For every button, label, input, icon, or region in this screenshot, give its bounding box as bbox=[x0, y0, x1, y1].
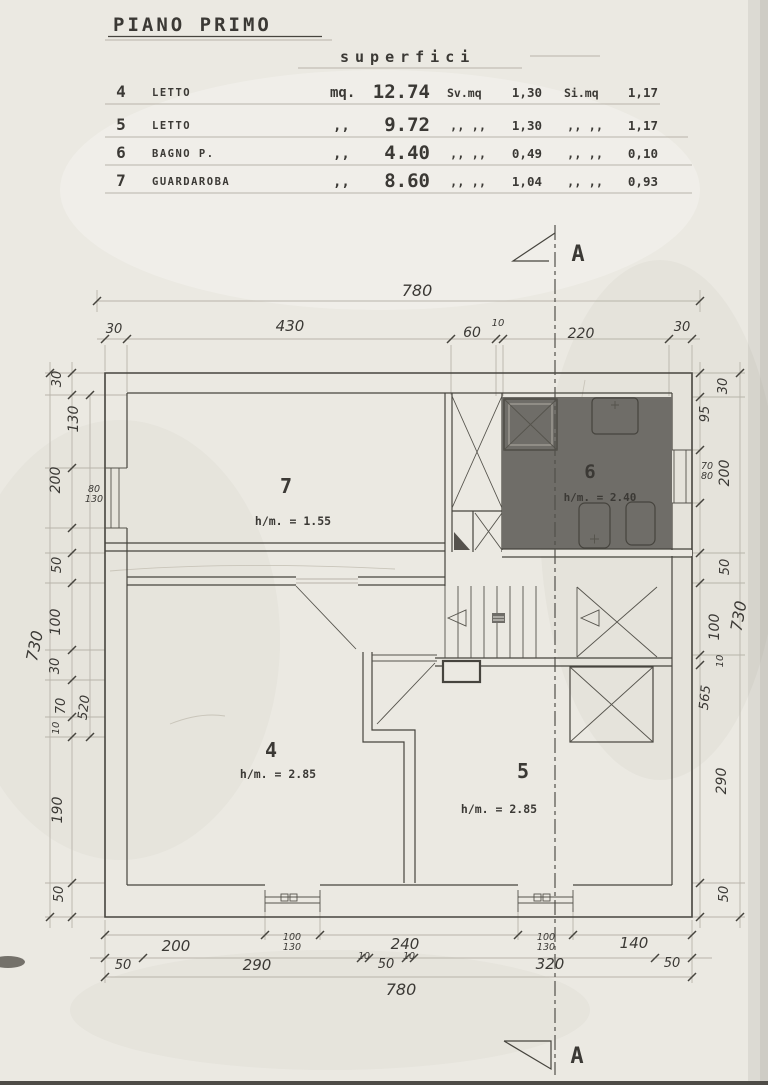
si-ditto: ,, ,, bbox=[567, 119, 603, 133]
dim-label: 50 bbox=[664, 956, 681, 971]
window-dim-sill: 80 bbox=[701, 471, 713, 482]
dim-label: 50 bbox=[52, 886, 67, 903]
dim-label: 320 bbox=[536, 955, 565, 973]
dim-bottom-overall: 780 bbox=[386, 980, 417, 999]
dim-label: 10 bbox=[403, 951, 415, 962]
room7-number: 7 bbox=[280, 474, 292, 498]
dim-label: 30 bbox=[48, 658, 63, 675]
sv-ditto: ,, ,, bbox=[450, 147, 486, 161]
dim-label: 100 bbox=[48, 609, 64, 636]
table-subtitle: superfici bbox=[340, 48, 475, 66]
row-number: 4 bbox=[116, 82, 126, 101]
row-number: 6 bbox=[116, 143, 126, 162]
sv-ditto: ,, ,, bbox=[450, 119, 486, 133]
room-name: LETTO bbox=[152, 87, 191, 99]
room4-number: 4 bbox=[265, 738, 277, 762]
dim-label: 200 bbox=[162, 937, 191, 955]
room-name: BAGNO P. bbox=[152, 148, 215, 160]
unit-ditto: ,, bbox=[333, 174, 350, 190]
si-value: 0,10 bbox=[628, 146, 658, 161]
dim-label: 200 bbox=[48, 467, 64, 494]
dim-label: 50 bbox=[50, 557, 65, 574]
page-title: PIANO PRIMO bbox=[113, 14, 272, 36]
dim-label: 10 bbox=[715, 655, 726, 668]
room7-height: h/m. = 1.55 bbox=[255, 514, 331, 528]
room-name: GUARDAROBA bbox=[152, 176, 230, 188]
dim-label: 60 bbox=[463, 325, 481, 341]
dim-label: 50 bbox=[378, 957, 395, 972]
dim-label: 190 bbox=[50, 797, 66, 824]
si-value: 1,17 bbox=[628, 85, 658, 100]
unit-ditto: ,, bbox=[333, 118, 350, 134]
si-value: 0,93 bbox=[628, 174, 658, 189]
dim-label: 220 bbox=[568, 326, 595, 342]
sv-value: 1,30 bbox=[512, 85, 542, 100]
row-number: 5 bbox=[116, 115, 126, 134]
dim-label: 140 bbox=[620, 934, 649, 952]
area-value: 4.40 bbox=[384, 142, 430, 164]
room5-number: 5 bbox=[517, 759, 529, 783]
room4-height: h/m. = 2.85 bbox=[240, 767, 316, 781]
area-value: 12.74 bbox=[373, 81, 430, 103]
section-label-top: A bbox=[571, 242, 584, 267]
stair-hatch-marker bbox=[492, 613, 505, 623]
window-dim-sill: 130 bbox=[283, 942, 301, 953]
area-value: 8.60 bbox=[384, 170, 430, 192]
si-ditto: ,, ,, bbox=[567, 147, 603, 161]
area-value: 9.72 bbox=[384, 114, 430, 136]
dim-label: 95 bbox=[698, 406, 713, 423]
dim-label: 290 bbox=[714, 768, 730, 795]
dim-label: 10 bbox=[492, 318, 505, 329]
si-value: 1,17 bbox=[628, 118, 658, 133]
dim-label: 30 bbox=[716, 378, 731, 395]
unit-label: mq. bbox=[330, 85, 355, 101]
dim-label: 30 bbox=[674, 320, 691, 335]
sv-value: 1,30 bbox=[512, 118, 542, 133]
dim-label: 70 bbox=[54, 698, 69, 715]
floor-plan-drawing: PIANO PRIMO superfici 4 LETTO mq. 12.74 … bbox=[0, 0, 768, 1085]
room5-height: h/m. = 2.85 bbox=[461, 802, 537, 816]
row-number: 7 bbox=[116, 171, 126, 190]
dim-label: 30 bbox=[50, 371, 65, 388]
sv-ditto: ,, ,, bbox=[450, 175, 486, 189]
si-label: Si.mq bbox=[564, 86, 599, 100]
unit-ditto: ,, bbox=[333, 146, 350, 162]
dim-label: 290 bbox=[243, 956, 272, 974]
dim-label: 50 bbox=[717, 886, 732, 903]
dim-label: 10 bbox=[358, 951, 370, 962]
dim-label: 200 bbox=[717, 460, 733, 487]
sv-label: Sv.mq bbox=[447, 86, 482, 100]
bathroom bbox=[502, 397, 692, 557]
dim-left-bracket: 520 bbox=[76, 694, 94, 720]
flue-box bbox=[443, 661, 480, 682]
window-dim-sill: 130 bbox=[85, 494, 103, 505]
room-name: LETTO bbox=[152, 120, 191, 132]
dim-label: 50 bbox=[718, 559, 733, 576]
dim-label: 430 bbox=[276, 317, 305, 335]
dim-label: 10 bbox=[51, 722, 62, 735]
sv-value: 0,49 bbox=[512, 146, 542, 161]
dim-label: 100 bbox=[707, 614, 723, 641]
room6-height: h/m. = 2.40 bbox=[564, 491, 637, 504]
dim-label: 130 bbox=[66, 406, 82, 433]
dim-label: 30 bbox=[106, 322, 123, 337]
section-label-bottom: A bbox=[570, 1044, 583, 1069]
dim-right-bracket: 565 bbox=[697, 685, 715, 711]
scanned-floor-plan-page: PIANO PRIMO superfici 4 LETTO mq. 12.74 … bbox=[0, 0, 768, 1085]
room6-number: 6 bbox=[584, 461, 595, 483]
sv-value: 1,04 bbox=[512, 174, 542, 189]
dim-label: 50 bbox=[115, 958, 132, 973]
window-dim-sill: 130 bbox=[537, 942, 555, 953]
dim-top-overall: 780 bbox=[402, 281, 433, 300]
si-ditto: ,, ,, bbox=[567, 175, 603, 189]
